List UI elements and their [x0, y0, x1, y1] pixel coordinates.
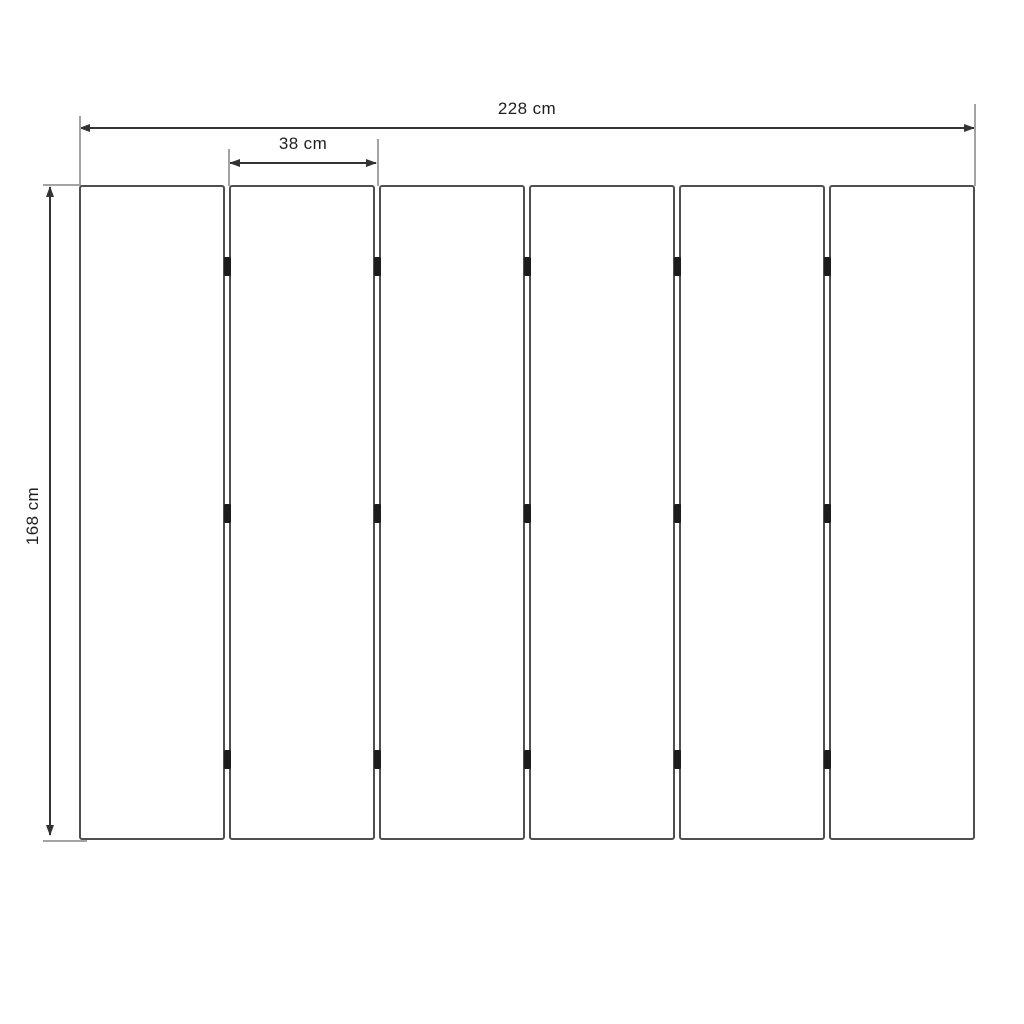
panel-5	[679, 185, 825, 840]
hinge	[224, 504, 231, 523]
hinge	[374, 504, 381, 523]
hinge	[824, 257, 831, 276]
total-width-label: 228 cm	[79, 99, 975, 119]
hinge	[824, 504, 831, 523]
hinge	[674, 504, 681, 523]
arrow-right-icon	[366, 159, 377, 167]
hinge	[224, 750, 231, 769]
hinge	[674, 257, 681, 276]
arrow-up-icon	[46, 186, 54, 197]
panel-2	[229, 185, 375, 840]
panel-3	[379, 185, 525, 840]
extension-line-height-top	[43, 184, 80, 186]
total-width-dimension-line	[80, 127, 974, 129]
hinge	[824, 750, 831, 769]
extension-line-total-left	[79, 116, 81, 186]
arrow-left-icon	[229, 159, 240, 167]
hinge	[374, 750, 381, 769]
dimension-diagram: 228 cm 38 cm 168 cm	[0, 0, 1024, 1024]
hinge	[674, 750, 681, 769]
hinge	[374, 257, 381, 276]
panel-width-dimension-line	[230, 162, 376, 164]
height-dimension-line	[49, 187, 51, 835]
extension-line-total-right	[974, 104, 976, 186]
arrow-down-icon	[46, 825, 54, 836]
hinge	[524, 257, 531, 276]
hinge	[224, 257, 231, 276]
panel-6	[829, 185, 975, 840]
panel-4	[529, 185, 675, 840]
hinge	[524, 750, 531, 769]
extension-line-height-bottom	[43, 840, 87, 842]
arrow-left-icon	[79, 124, 90, 132]
hinge	[524, 504, 531, 523]
extension-line-panel-right	[377, 139, 379, 186]
extension-line-panel-left	[228, 149, 230, 186]
panel-width-label: 38 cm	[230, 134, 376, 154]
panel-1	[79, 185, 225, 840]
height-label: 168 cm	[23, 487, 43, 545]
